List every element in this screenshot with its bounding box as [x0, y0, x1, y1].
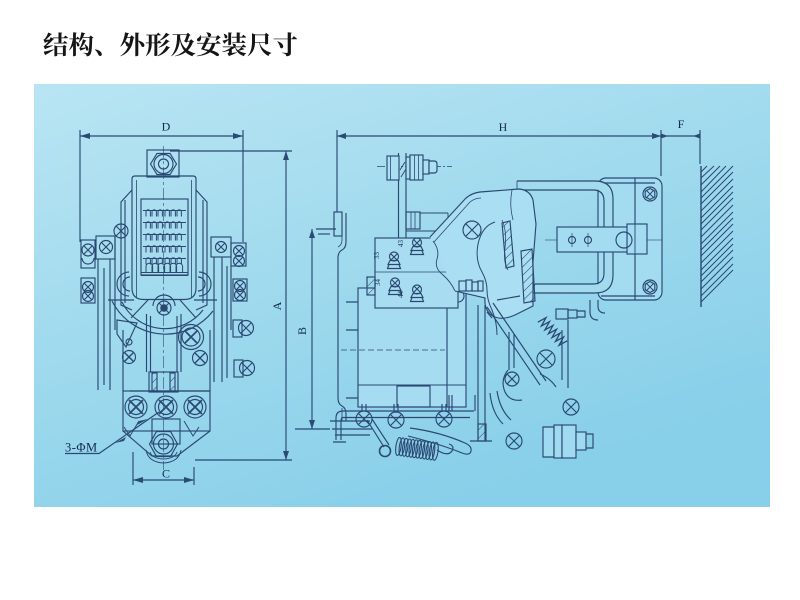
svg-text:F: F: [678, 117, 685, 131]
svg-text:43: 43: [397, 240, 405, 248]
svg-text:A: A: [270, 301, 284, 310]
svg-text:33: 33: [373, 252, 381, 260]
svg-text:D: D: [162, 120, 171, 134]
svg-text:34: 34: [374, 279, 382, 287]
svg-text:B: B: [295, 327, 309, 335]
svg-text:3-ΦM: 3-ΦM: [65, 441, 98, 455]
svg-text:44: 44: [397, 291, 405, 299]
svg-text:C: C: [162, 467, 170, 481]
svg-text:H: H: [499, 120, 508, 134]
